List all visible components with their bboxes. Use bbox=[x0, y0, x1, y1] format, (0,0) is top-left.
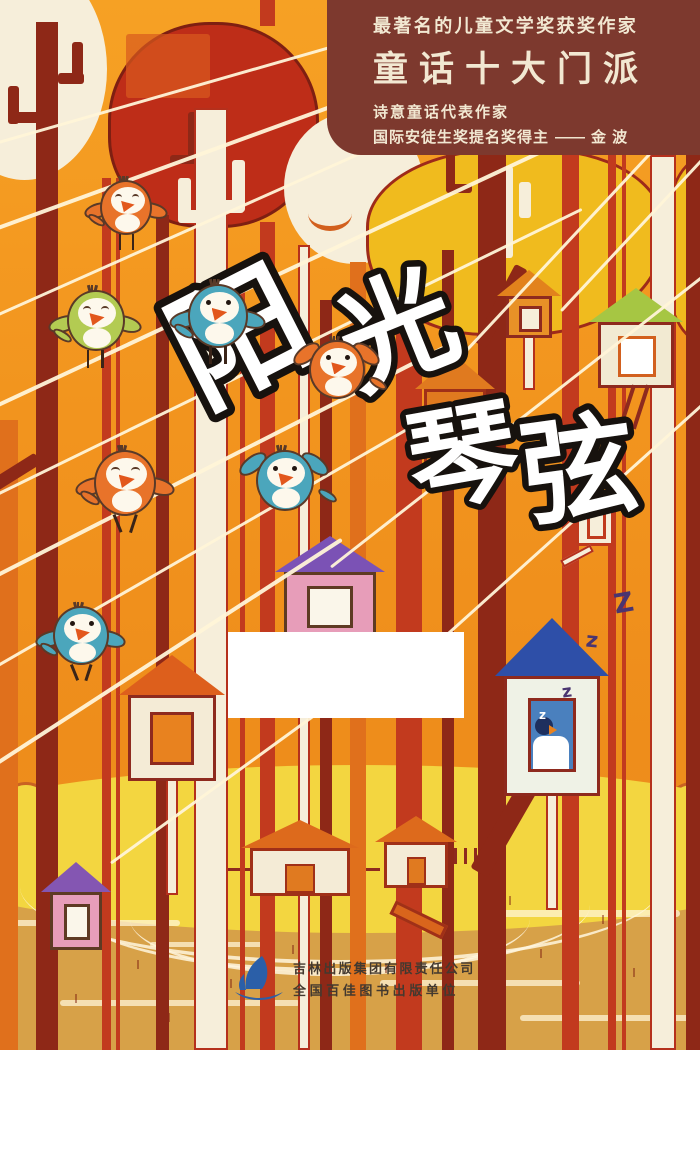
sleep-z-letter: Z bbox=[611, 587, 636, 621]
sleep-z-letter: z bbox=[585, 627, 600, 652]
header-tagline: 最著名的儿童文学奖获奖作家 bbox=[373, 12, 700, 38]
series-title: 童话十大门派 bbox=[373, 41, 700, 92]
author-line: 国际安徒生奖提名奖得主——金 波 bbox=[373, 126, 700, 147]
sleep-z-layer: zzZz bbox=[0, 0, 700, 1050]
blank-label-box bbox=[228, 632, 464, 718]
page-bottom-margin bbox=[0, 1050, 700, 1168]
sleep-z-letter: z bbox=[561, 681, 574, 702]
book-cover-page: 阳 光 琴 弦 zzZz 最著名的儿童文学奖获奖作家 童话十大门派 诗意童话代表… bbox=[0, 0, 700, 1168]
cover-illustration: 阳 光 琴 弦 zzZz 最著名的儿童文学奖获奖作家 童话十大门派 诗意童话代表… bbox=[0, 0, 700, 1050]
header-text-box: 最著名的儿童文学奖获奖作家 童话十大门派 诗意童话代表作家 国际安徒生奖提名奖得… bbox=[327, 0, 700, 155]
dash: —— bbox=[549, 129, 591, 146]
award-text: 国际安徒生奖提名奖得主 bbox=[373, 129, 549, 146]
author-tagline: 诗意童话代表作家 bbox=[373, 101, 700, 122]
author-name: 金 波 bbox=[591, 129, 628, 146]
sleep-z-letter: z bbox=[539, 708, 546, 722]
